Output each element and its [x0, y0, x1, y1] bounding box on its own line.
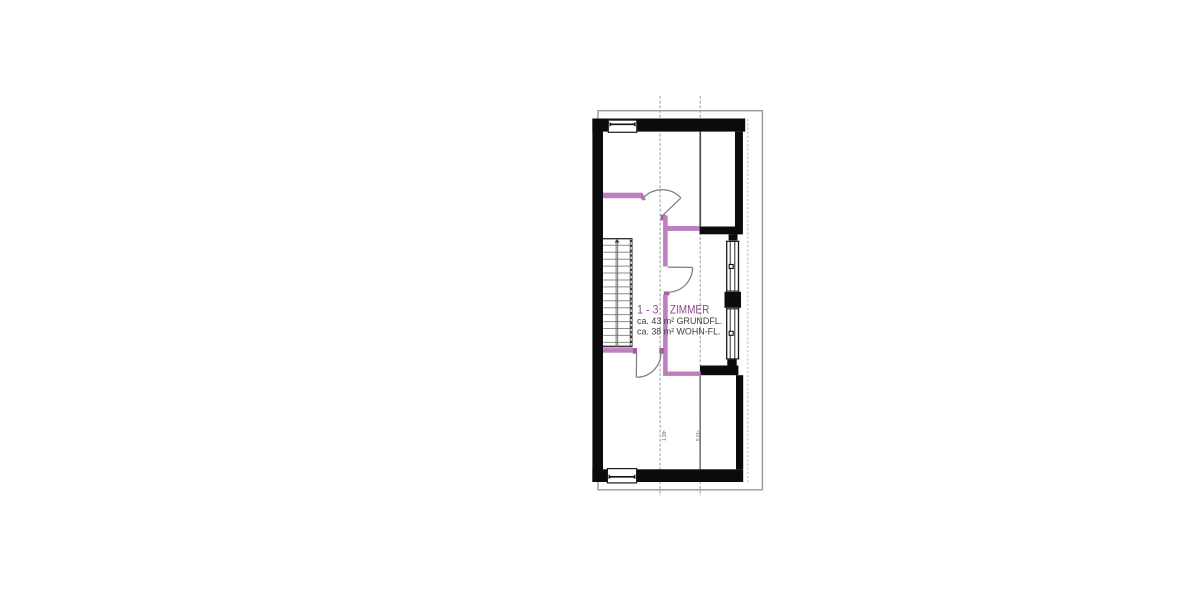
svg-text:5.01⁵: 5.01⁵ [696, 430, 702, 441]
svg-text:ZIMMER: ZIMMER [670, 302, 710, 316]
svg-text:ca. 43 m² GRUNDFL.: ca. 43 m² GRUNDFL. [637, 316, 722, 327]
svg-text:1 - 3: 1 - 3 [637, 302, 659, 316]
svg-text:1.38⁵: 1.38⁵ [662, 430, 668, 441]
svg-text:ca. 38 m² WOHN-FL.: ca. 38 m² WOHN-FL. [637, 327, 721, 338]
